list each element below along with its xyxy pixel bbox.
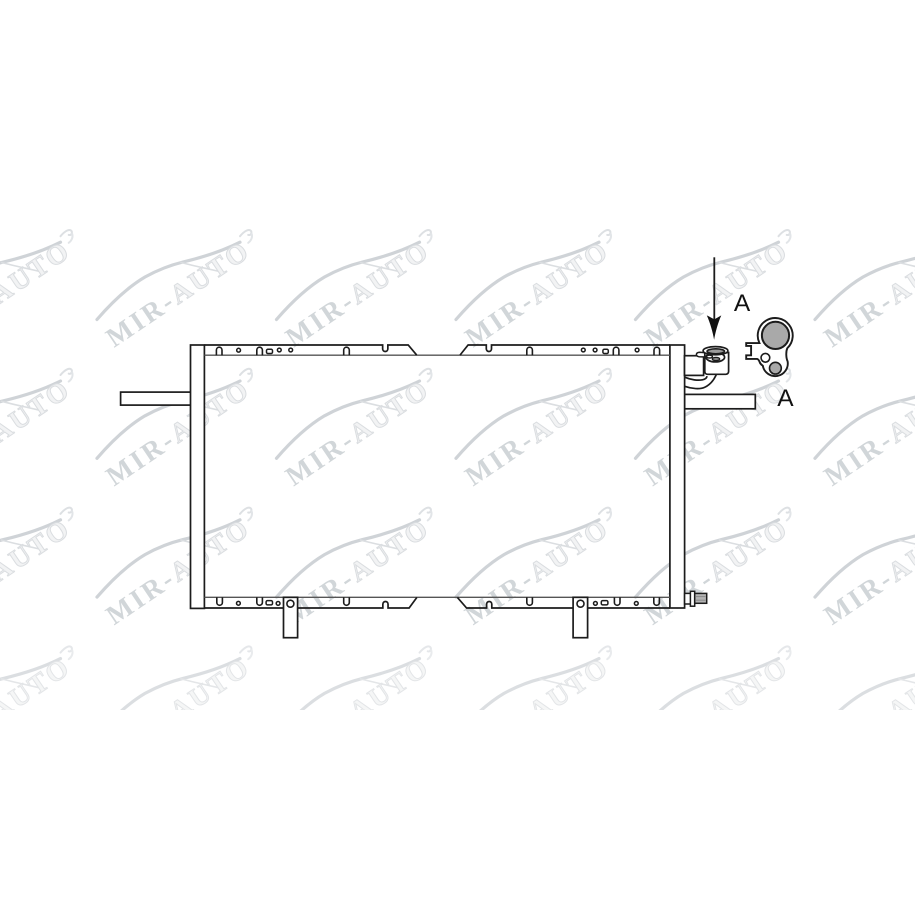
svg-text:A: A <box>734 290 751 317</box>
svg-text:A: A <box>777 385 794 412</box>
